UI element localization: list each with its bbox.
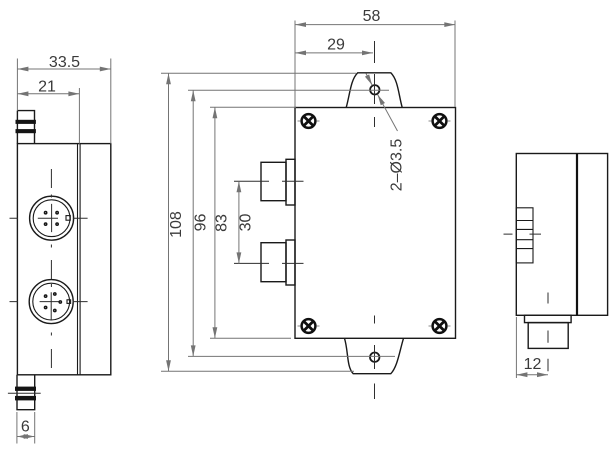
svg-text:6: 6: [21, 419, 30, 436]
svg-text:58: 58: [363, 8, 381, 25]
svg-text:29: 29: [327, 37, 345, 54]
svg-text:108: 108: [168, 211, 185, 238]
svg-text:33.5: 33.5: [49, 54, 80, 71]
svg-text:12: 12: [524, 356, 542, 373]
svg-text:21: 21: [38, 79, 56, 96]
svg-text:83: 83: [214, 214, 231, 232]
svg-text:2–Ø3.5: 2–Ø3.5: [389, 139, 406, 192]
svg-text:96: 96: [193, 214, 210, 232]
svg-text:30: 30: [238, 214, 255, 232]
